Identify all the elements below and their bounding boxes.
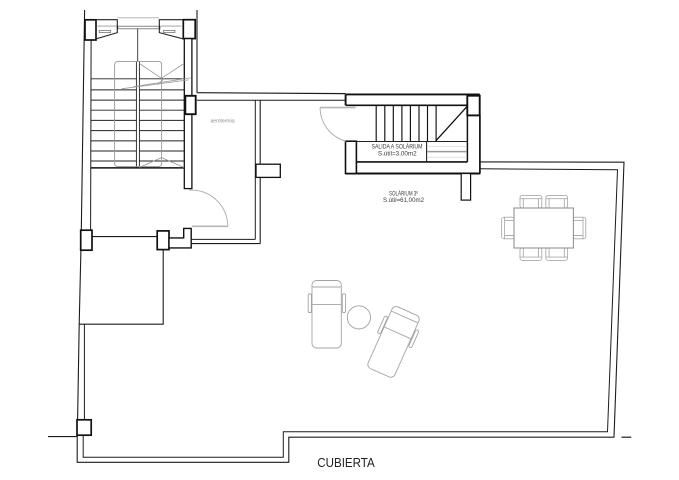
svg-text:S.útil=3,00m2: S.útil=3,00m2 [378, 151, 417, 157]
svg-text:CUBIERTA: CUBIERTA [317, 455, 375, 470]
svg-text:SOLÁRIUM 3º: SOLÁRIUM 3º [389, 190, 419, 197]
svg-text:aerotermia: aerotermia [211, 119, 235, 125]
svg-text:S.útil=61,00m2: S.útil=61,00m2 [383, 198, 425, 204]
svg-text:SALIDA A SOLÁRIUM: SALIDA A SOLÁRIUM [372, 144, 423, 151]
